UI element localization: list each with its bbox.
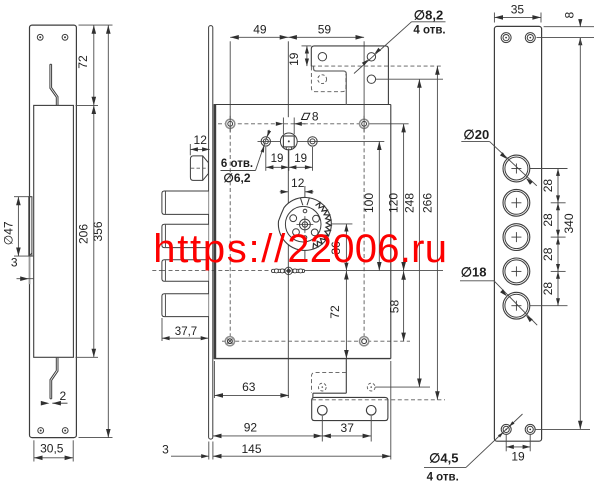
svg-text:4 отв.: 4 отв. [413,25,445,37]
svg-text:3: 3 [162,442,169,456]
svg-text:92: 92 [244,420,258,434]
svg-text:28: 28 [541,247,555,261]
svg-text:19: 19 [294,153,307,165]
svg-text:266: 266 [420,193,434,213]
svg-text:https://: https:// [153,227,287,271]
svg-text:49: 49 [253,23,267,37]
svg-text:19: 19 [511,449,525,463]
svg-text:58: 58 [387,300,401,314]
svg-text:120: 120 [387,193,401,213]
svg-text:∅8,2: ∅8,2 [414,7,443,22]
svg-text:∅4,5: ∅4,5 [429,451,458,466]
svg-text:12: 12 [194,133,208,147]
svg-text:19: 19 [271,153,284,165]
svg-text:30,5: 30,5 [40,441,64,455]
svg-text:∅6,2: ∅6,2 [223,171,250,185]
svg-text:63: 63 [242,380,256,394]
svg-text:248: 248 [402,193,416,213]
svg-text:37: 37 [341,421,355,435]
svg-text:4 отв.: 4 отв. [427,471,459,483]
svg-text:19: 19 [287,52,301,66]
svg-text:28: 28 [541,213,555,227]
svg-text:145: 145 [241,442,261,456]
svg-text:37,7: 37,7 [175,326,197,338]
svg-text:∅18: ∅18 [461,265,487,280]
svg-text:2: 2 [60,389,67,403]
svg-text:72: 72 [328,305,342,319]
svg-text:35: 35 [511,2,525,16]
svg-text:∅47: ∅47 [1,221,15,245]
svg-text:22006.ru: 22006.ru [287,227,447,271]
svg-text:3: 3 [11,255,18,269]
svg-text:8: 8 [312,109,319,123]
svg-text:6 отв.: 6 отв. [221,158,253,170]
svg-text:72: 72 [76,55,90,69]
svg-text:28: 28 [541,179,555,193]
svg-text:100: 100 [362,193,376,213]
svg-text:206: 206 [76,224,90,244]
svg-text:8: 8 [562,12,576,19]
svg-text:∅20: ∅20 [463,127,489,142]
svg-text:28: 28 [541,282,555,296]
svg-text:356: 356 [91,221,105,241]
svg-text:59: 59 [318,23,332,37]
svg-text:12: 12 [291,176,305,190]
svg-text:340: 340 [562,213,576,233]
